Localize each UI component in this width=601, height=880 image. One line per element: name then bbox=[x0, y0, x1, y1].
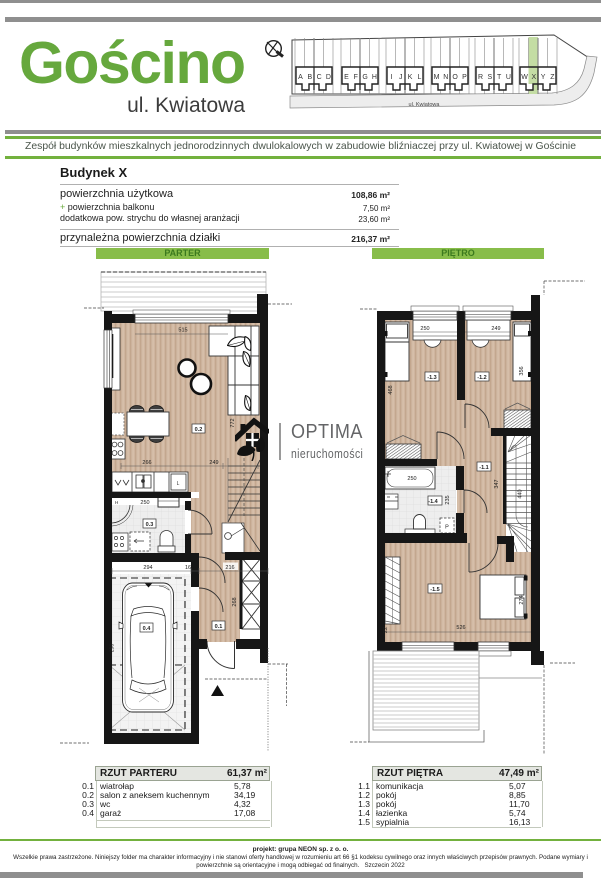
svg-text:P: P bbox=[462, 74, 467, 81]
svg-text:A: A bbox=[298, 74, 303, 81]
svg-text:-1.5: -1.5 bbox=[430, 587, 439, 593]
svg-text:440: 440 bbox=[518, 489, 524, 498]
svg-text:R: R bbox=[478, 74, 483, 81]
svg-text:-1.1: -1.1 bbox=[479, 465, 488, 471]
svg-text:W: W bbox=[521, 74, 528, 81]
svg-text:22: 22 bbox=[383, 627, 389, 633]
svg-text:O: O bbox=[452, 74, 458, 81]
svg-text:U: U bbox=[506, 74, 511, 81]
svg-text:X: X bbox=[531, 74, 536, 81]
svg-text:-1.2: -1.2 bbox=[477, 375, 486, 381]
svg-text:0.1: 0.1 bbox=[215, 624, 223, 630]
svg-text:-1.3: -1.3 bbox=[427, 375, 436, 381]
svg-text:Z: Z bbox=[550, 74, 555, 81]
svg-text:S: S bbox=[487, 74, 492, 81]
svg-text:249: 249 bbox=[209, 460, 218, 466]
svg-text:0.2: 0.2 bbox=[195, 427, 203, 433]
svg-text:T: T bbox=[497, 74, 502, 81]
svg-text:D: D bbox=[326, 74, 331, 81]
svg-text:-1.4: -1.4 bbox=[428, 499, 438, 505]
svg-text:356: 356 bbox=[519, 366, 525, 375]
svg-text:P: P bbox=[445, 525, 449, 531]
svg-text:N: N bbox=[443, 74, 448, 81]
svg-text:K: K bbox=[408, 74, 413, 81]
svg-text:L: L bbox=[417, 74, 421, 81]
svg-text:250: 250 bbox=[407, 476, 416, 482]
svg-text:515: 515 bbox=[178, 328, 187, 334]
svg-text:235: 235 bbox=[445, 495, 451, 504]
svg-text:294: 294 bbox=[143, 565, 152, 571]
svg-text:J: J bbox=[399, 74, 403, 81]
svg-text:M: M bbox=[434, 74, 440, 81]
svg-text:E: E bbox=[344, 74, 349, 81]
svg-text:H: H bbox=[372, 74, 377, 81]
svg-text:16: 16 bbox=[185, 565, 191, 571]
svg-text:F: F bbox=[354, 74, 358, 81]
svg-text:296: 296 bbox=[110, 644, 116, 653]
svg-text:216: 216 bbox=[225, 565, 234, 571]
svg-text:347: 347 bbox=[494, 479, 500, 488]
svg-text:0.3: 0.3 bbox=[146, 522, 154, 528]
svg-text:249: 249 bbox=[491, 326, 500, 332]
svg-text:250: 250 bbox=[140, 500, 149, 506]
svg-text:268: 268 bbox=[232, 597, 238, 606]
svg-text:266: 266 bbox=[142, 460, 151, 466]
svg-text:C: C bbox=[317, 74, 322, 81]
svg-text:G: G bbox=[362, 74, 367, 81]
svg-text:526: 526 bbox=[456, 625, 465, 631]
svg-text:L: L bbox=[177, 481, 180, 487]
svg-text:0.4: 0.4 bbox=[143, 626, 152, 632]
svg-text:I: I bbox=[391, 74, 393, 81]
svg-text:468: 468 bbox=[388, 385, 394, 394]
svg-text:Y: Y bbox=[541, 74, 546, 81]
svg-text:250: 250 bbox=[420, 326, 429, 332]
svg-text:274: 274 bbox=[519, 595, 525, 604]
svg-text:H: H bbox=[115, 500, 118, 505]
svg-text:B: B bbox=[307, 74, 312, 81]
svg-text:ul. Kwiatowa: ul. Kwiatowa bbox=[409, 102, 441, 108]
